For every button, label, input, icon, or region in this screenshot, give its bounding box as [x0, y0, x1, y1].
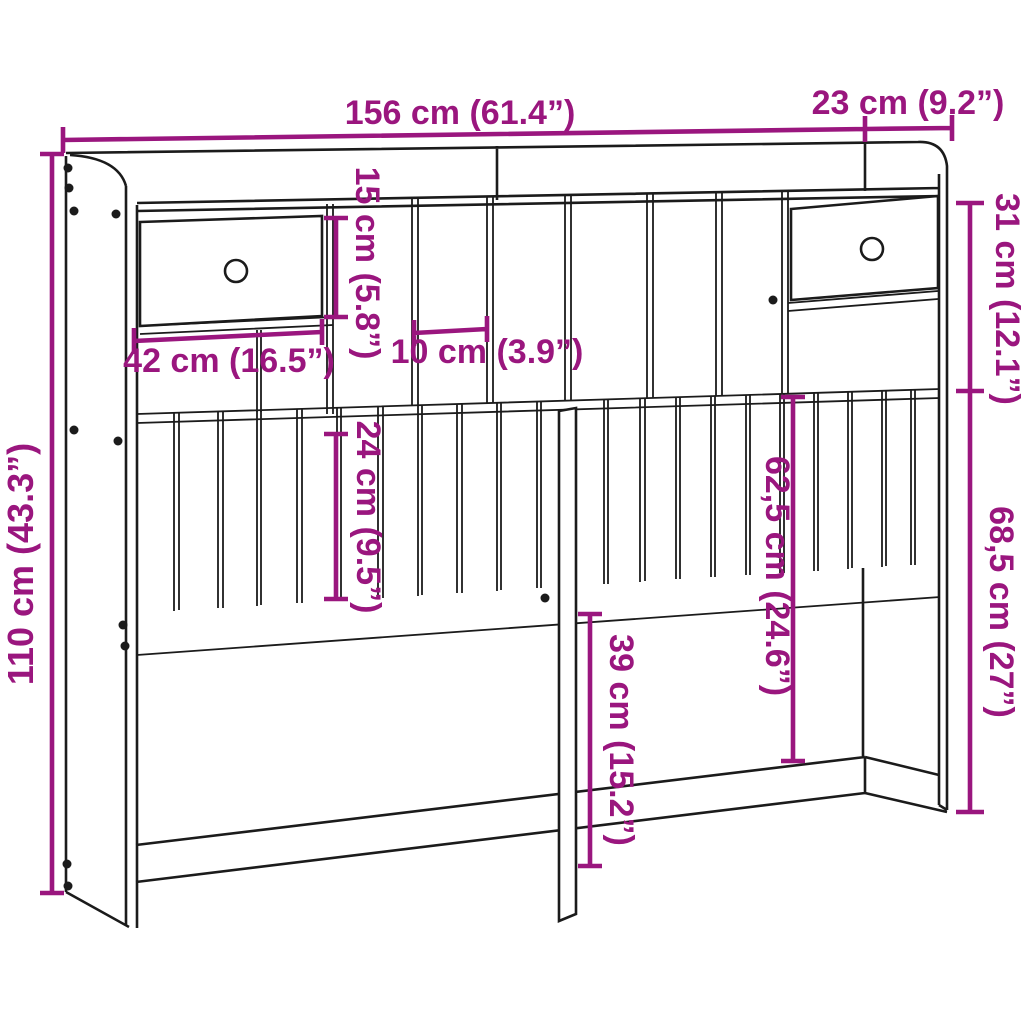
dimension-drawer-width: 42 cm (16.5”) [123, 319, 335, 380]
dim-label-overall-height: 110 cm (43.3”) [0, 443, 41, 685]
dim-label-top-section-height: 31 cm (12.1”) [988, 193, 1024, 405]
left-side-panel [66, 155, 137, 928]
left-drawer-hole [225, 260, 247, 282]
dimension-top-section-height: 31 cm (12.1”) [956, 193, 1024, 405]
bottom-rails [136, 568, 947, 882]
dim-label-compartment-height: 15 cm (5.8”) [348, 167, 386, 360]
dim-label-slot-width: 10 cm (3.9”) [391, 333, 584, 371]
dim-line-overall-height [40, 154, 64, 893]
dim-label-depth: 23 cm (9.2”) [812, 84, 1005, 122]
dimension-depth: 23 cm (9.2”) [812, 84, 1005, 141]
dimension-slot-width: 10 cm (3.9”) [391, 316, 584, 371]
dim-label-lower-section-height: 68,5 cm (27”) [982, 506, 1020, 718]
dim-label-shelf-to-rail-height: 62,5 cm (24.6”) [758, 456, 796, 696]
dimension-lower-section-height: 68,5 cm (27”) [956, 391, 1020, 812]
dim-label-drawer-width: 42 cm (16.5”) [123, 342, 335, 380]
dim-label-slat-panel-height: 24 cm (9.5”) [349, 421, 387, 614]
technical-drawing: 156 cm (61.4”) 23 cm (9.2”) 110 cm (43.3… [0, 0, 1024, 1024]
dim-line-lower-section-height [956, 391, 984, 812]
dimension-overall-height: 110 cm (43.3”) [0, 154, 64, 893]
dim-label-leg-clearance-height: 39 cm (15.2”) [602, 634, 640, 846]
dim-label-overall-width: 156 cm (61.4”) [345, 94, 576, 132]
center-leg [559, 408, 576, 921]
dimension-slat-panel-height: 24 cm (9.5”) [324, 421, 387, 614]
dimension-shelf-to-rail-height: 62,5 cm (24.6”) [758, 397, 805, 761]
dim-line-slat-panel-height [324, 434, 348, 599]
furniture-line-art [63, 140, 948, 928]
dim-line-top-section-height [956, 203, 984, 391]
right-drawer-hole [861, 238, 883, 260]
